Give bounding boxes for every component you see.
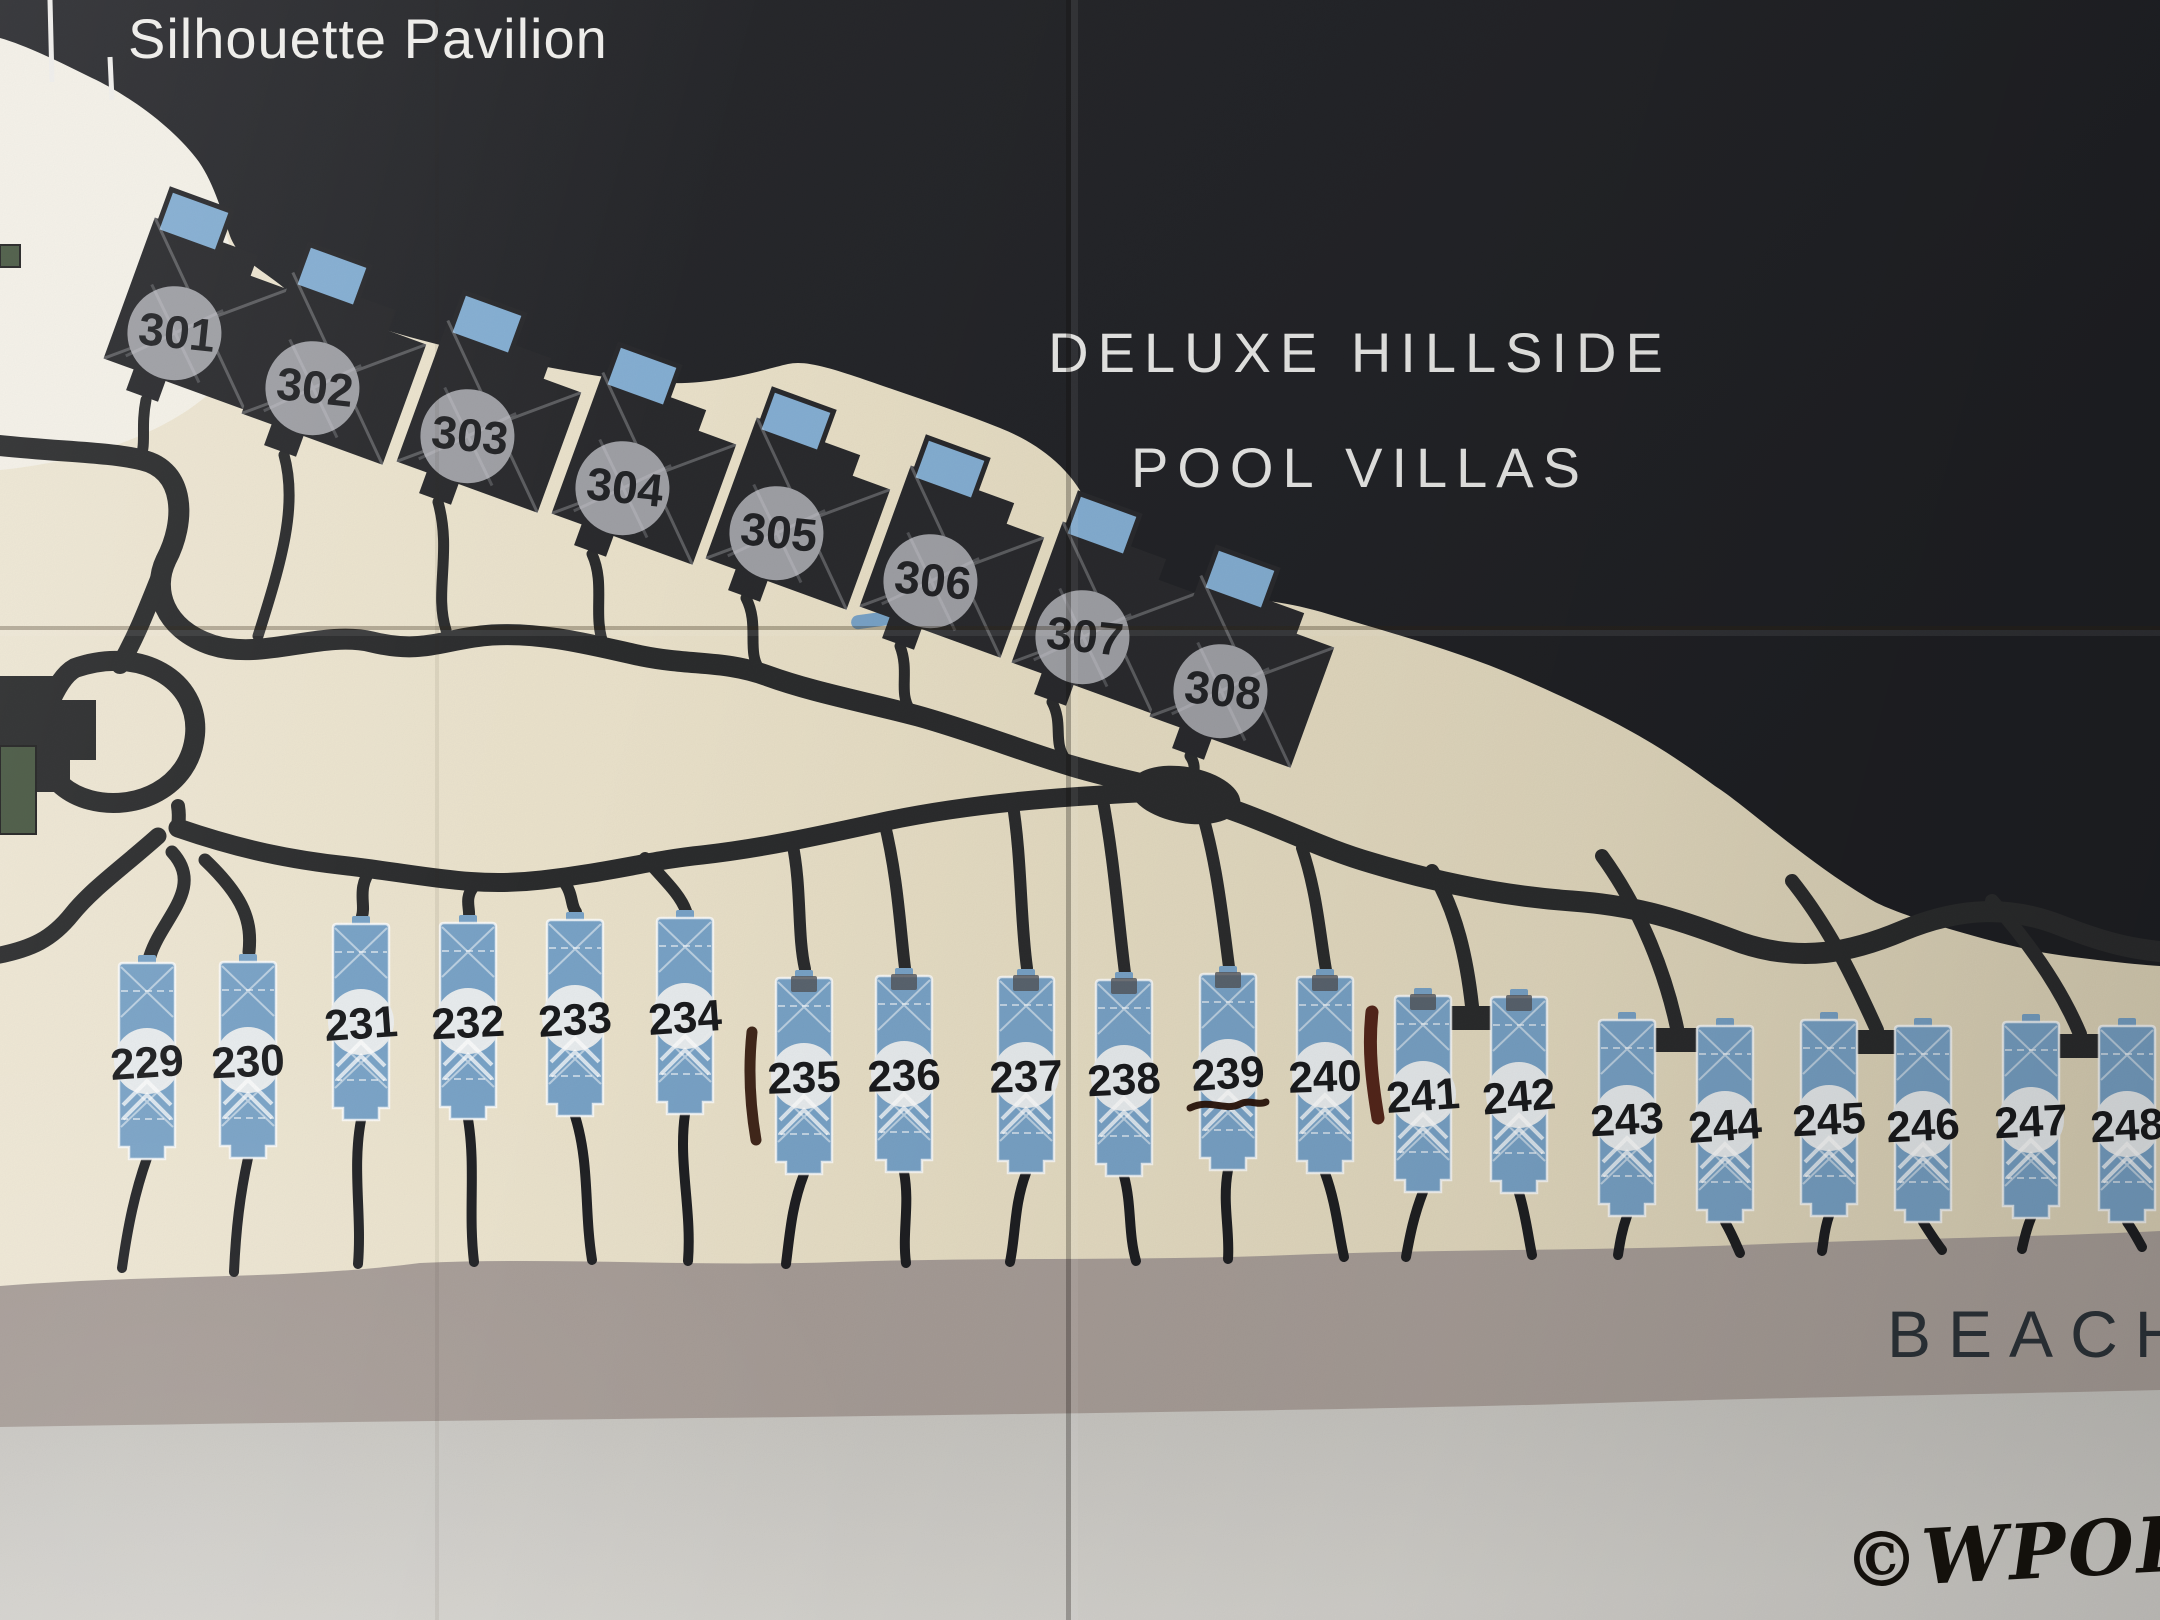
resort-map-photo: 229 230 231 232 233 234 235 236 237 238 … [0, 0, 2160, 1620]
map-canvas: 229 230 231 232 233 234 235 236 237 238 … [0, 0, 2160, 1620]
paper-grain [0, 0, 2160, 1620]
